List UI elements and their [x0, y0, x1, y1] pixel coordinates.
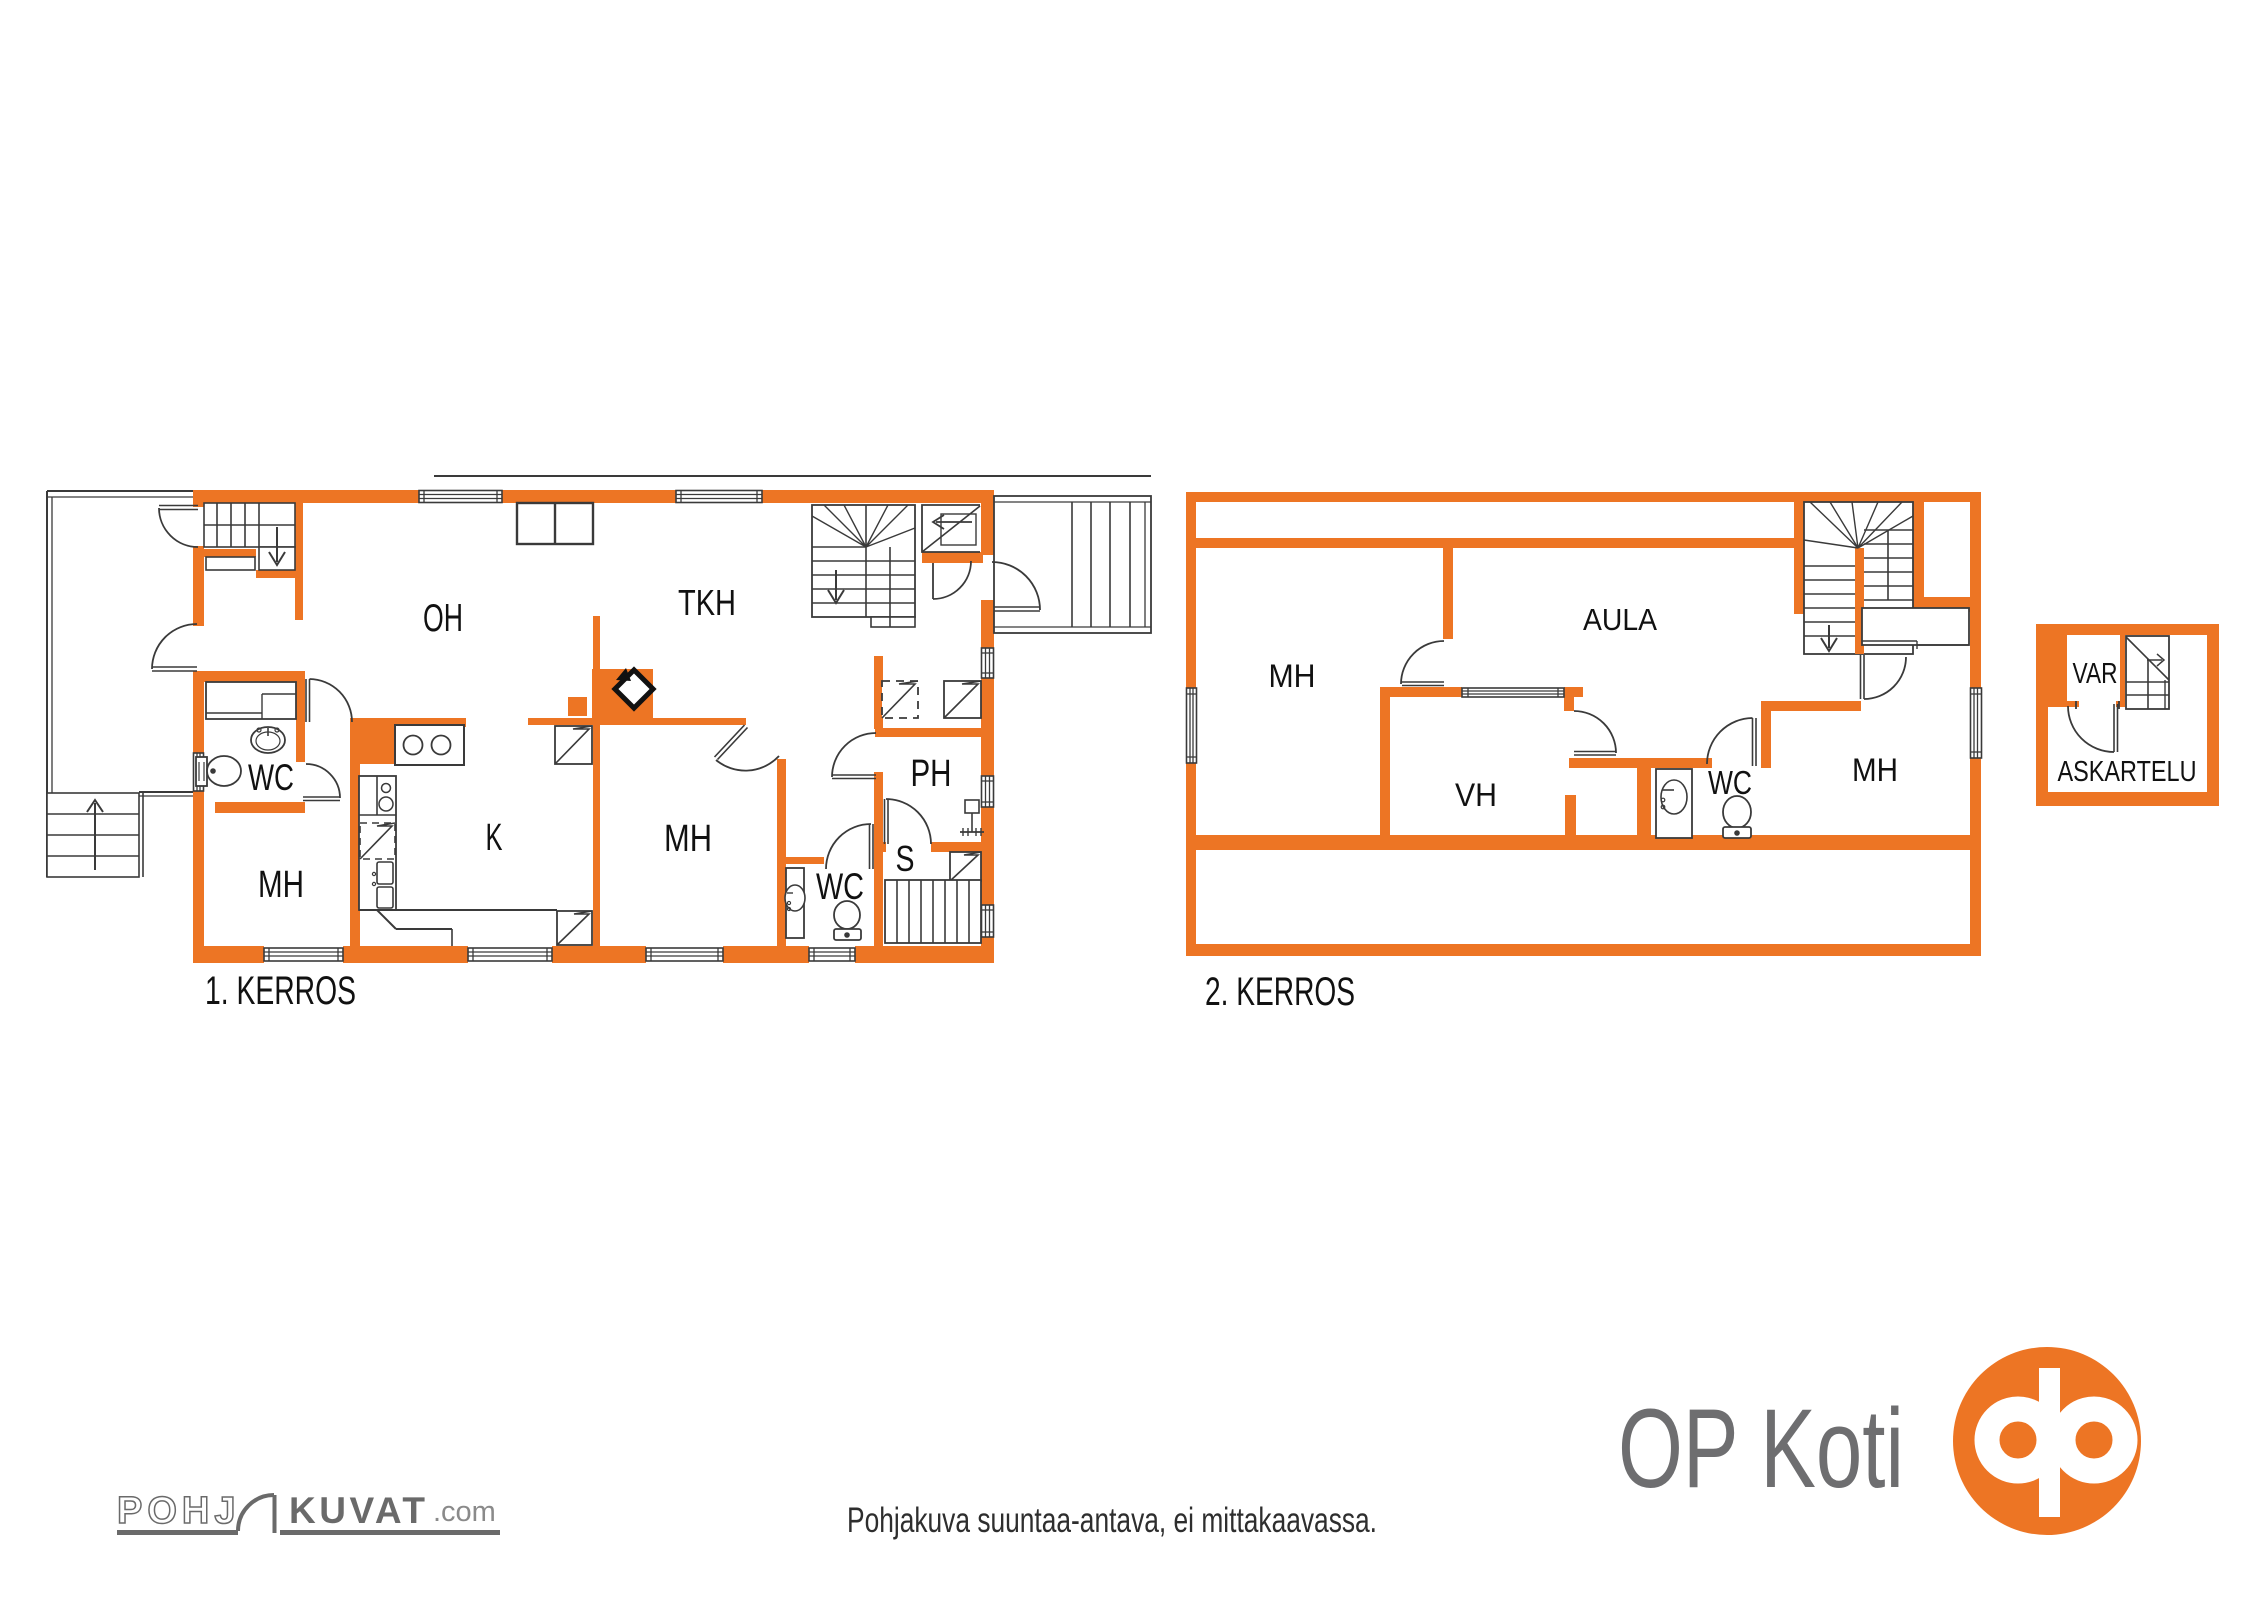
svg-text:S: S: [896, 838, 915, 879]
svg-text:TKH: TKH: [678, 582, 736, 623]
svg-text:MH: MH: [664, 818, 712, 860]
svg-text:VAR: VAR: [2073, 658, 2118, 690]
svg-text:WC: WC: [816, 866, 864, 907]
svg-text:WC: WC: [1708, 764, 1752, 801]
svg-text:WC: WC: [248, 757, 294, 798]
svg-text:Pohjakuva suuntaa-antava, ei m: Pohjakuva suuntaa-antava, ei mittakaavas…: [847, 1501, 1377, 1540]
svg-text:AULA: AULA: [1583, 602, 1657, 637]
svg-text:POHJ: POHJ: [117, 1490, 240, 1532]
svg-text:PH: PH: [911, 753, 952, 795]
svg-text:KUVAT: KUVAT: [289, 1490, 428, 1531]
svg-text:OH: OH: [423, 597, 463, 640]
svg-text:.com: .com: [433, 1496, 496, 1528]
svg-text:MH: MH: [258, 864, 304, 906]
svg-text:OP Koti: OP Koti: [1618, 1386, 1904, 1511]
svg-text:2. KERROS: 2. KERROS: [1205, 970, 1355, 1014]
svg-text:MH: MH: [1269, 658, 1316, 694]
svg-text:VH: VH: [1455, 777, 1497, 813]
svg-text:1. KERROS: 1. KERROS: [205, 969, 356, 1013]
svg-text:K: K: [486, 817, 503, 859]
svg-text:ASKARTELU: ASKARTELU: [2058, 756, 2197, 788]
svg-text:MH: MH: [1852, 752, 1898, 788]
